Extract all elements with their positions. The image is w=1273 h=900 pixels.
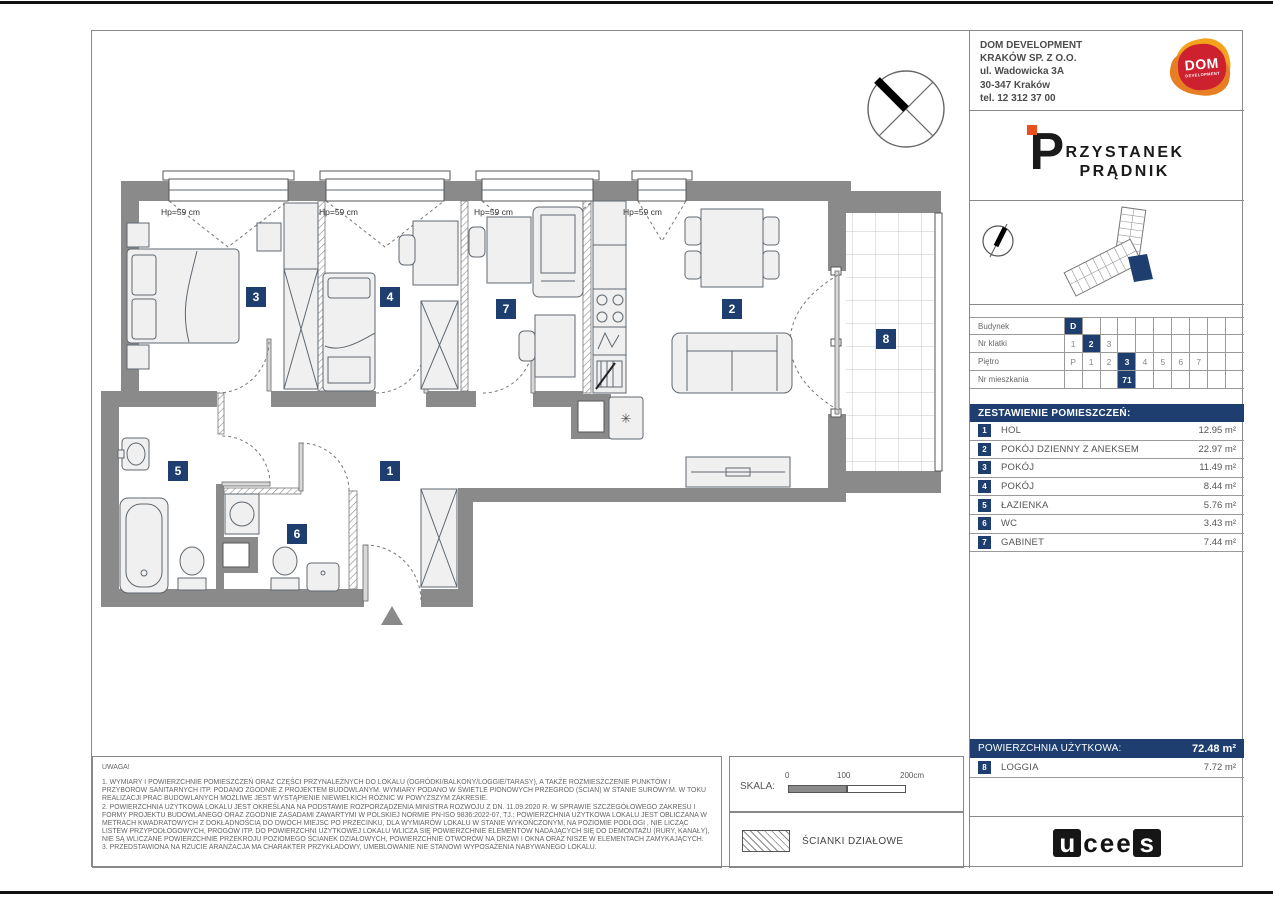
unit-info-cell: 1 — [1083, 353, 1101, 370]
unit-info-label: Nr klatki — [970, 335, 1065, 352]
scale-box: SKALA: 0 100 200cm — [729, 756, 964, 812]
unit-info-label: Budynek — [970, 318, 1065, 334]
room-number-badge: 3 — [978, 461, 991, 474]
usable-area-label: POWIERZCHNIA UŻYTKOWA: — [970, 743, 1121, 754]
armchair — [533, 207, 583, 297]
furniture-bathroom — [118, 438, 206, 593]
chair — [763, 217, 779, 245]
logo-line-1: RZYSTANEK — [1065, 144, 1184, 162]
room-area: 7.44 m² — [1204, 537, 1236, 548]
unit-info-cell: 3 — [1118, 353, 1136, 370]
unit-info-row: PiętroP1234567 — [970, 353, 1244, 371]
parapet-height-label: Hp=59 cm — [623, 207, 662, 217]
building-outline — [1064, 207, 1153, 296]
loggia-number-badge: 8 — [978, 761, 991, 774]
chair — [763, 251, 779, 279]
developer-info: DOM DEVELOPMENT KRAKÓW SP. Z O.O. ul. Wa… — [970, 31, 1244, 111]
notes-list: 1. WYMIARY I POWIERZCHNIE POMIESZCZEŃ OR… — [102, 779, 712, 852]
pillow — [328, 278, 370, 298]
unit-info-label: Piętro — [970, 353, 1065, 370]
room-number-badge: 2 — [978, 443, 991, 456]
scale-tick-0: 0 — [785, 771, 789, 780]
blanket — [328, 357, 370, 383]
north-compass-icon — [868, 71, 944, 147]
room-row: 1HOL12.95 m² — [970, 422, 1244, 441]
furniture-hall — [421, 489, 457, 587]
nightstand — [127, 345, 149, 369]
unit-info-cell — [1226, 335, 1244, 352]
notes-title: UWAGA! — [102, 764, 712, 772]
room-number-badge: 1 — [978, 424, 991, 437]
loggia-area: 7.72 m² — [1204, 762, 1236, 773]
furniture-room-3 — [127, 203, 318, 389]
pillow — [132, 255, 156, 295]
entrance-arrow — [381, 606, 403, 625]
unit-info-row: Nr mieszkania71 — [970, 371, 1244, 389]
door-entrance — [363, 545, 421, 601]
unit-info-table: BudynekDNr klatki123PiętroP1234567Nr mie… — [970, 317, 1244, 389]
room-name: GABINET — [1001, 537, 1044, 548]
room-row: 6WC3.43 m² — [970, 515, 1244, 534]
floor-plan-drawing: ✳ — [92, 31, 969, 756]
unit-info-cell — [1154, 371, 1172, 388]
brand-letter: s — [1133, 829, 1161, 857]
logo-line-2: PRĄDNIK — [1065, 163, 1184, 181]
room-badge-8: 8 — [876, 329, 896, 349]
duct-shafts — [216, 394, 611, 573]
wardrobe — [284, 269, 318, 389]
chair — [685, 217, 701, 245]
pillow — [132, 299, 156, 339]
page-top-rule — [0, 1, 1273, 4]
drawing-sheet: ✳ — [91, 30, 1243, 867]
room-name: HOL — [1001, 425, 1021, 436]
unit-info-cell — [1226, 371, 1244, 388]
unit-info-label: Nr mieszkania — [970, 371, 1065, 388]
unit-info-cell: 4 — [1136, 353, 1154, 370]
unit-info-cell — [1136, 318, 1154, 334]
unit-info-cell: 2 — [1101, 353, 1119, 370]
chair — [685, 251, 701, 279]
toilet — [178, 547, 206, 590]
chair — [469, 227, 485, 257]
usable-area-bar: POWIERZCHNIA UŻYTKOWA: 72.48 m² — [970, 739, 1244, 758]
site-map-drawing — [970, 201, 1245, 305]
nightstand — [127, 223, 149, 247]
fridge: ✳ — [609, 397, 643, 439]
unit-info-cell: 6 — [1172, 353, 1190, 370]
room-area: 22.97 m² — [1199, 444, 1237, 455]
brand-letter: c — [1083, 829, 1097, 857]
room-area: 3.43 m² — [1204, 518, 1236, 529]
dining-table — [701, 209, 763, 287]
info-sidebar: DOM DEVELOPMENT KRAKÓW SP. Z O.O. ul. Wa… — [969, 31, 1244, 868]
unit-info-cell — [1208, 353, 1226, 370]
unit-info-cell — [1154, 335, 1172, 352]
loggia-name: LOGGIA — [1001, 762, 1039, 773]
room-badge-6: 6 — [287, 524, 307, 544]
sink — [593, 327, 626, 355]
room-area: 5.76 m² — [1204, 500, 1236, 511]
floorplan-sheet: { "colors": {"navy":"#1d3e6e","wall_gray… — [0, 0, 1273, 900]
window-4 — [632, 171, 692, 241]
room-area: 11.49 m² — [1199, 462, 1236, 473]
scale-bar-filled — [788, 785, 847, 793]
unit-info-cell: 5 — [1154, 353, 1172, 370]
unit-info-cell: 71 — [1118, 371, 1136, 388]
unit-info-cell — [1154, 318, 1172, 334]
unit-info-cell: 7 — [1190, 353, 1208, 370]
unit-info-cell — [1172, 371, 1190, 388]
note-item: 3. PRZEDSTAWIONA NA RZUCIE ARANŻACJA MA … — [102, 844, 712, 852]
door-wc — [299, 443, 349, 491]
brand-letter: e — [1100, 829, 1114, 857]
room-badge-3: 3 — [246, 287, 266, 307]
unit-info-cell: P — [1065, 353, 1083, 370]
scale-bar-empty — [847, 785, 906, 793]
room-number-badge: 5 — [978, 499, 991, 512]
room-area: 8.44 m² — [1204, 481, 1236, 492]
room-badge-7: 7 — [496, 299, 516, 319]
counter — [593, 201, 626, 245]
project-logo-box: P RZYSTANEK PRĄDNIK — [970, 111, 1244, 201]
room-number-badge: 6 — [978, 517, 991, 530]
room-area: 12.95 m² — [1199, 425, 1237, 436]
room-name: ŁAZIENKA — [1001, 500, 1049, 511]
ucees-logo: ucees — [970, 816, 1244, 868]
unit-info-cell — [1208, 371, 1226, 388]
room-badge-1: 1 — [380, 461, 400, 481]
unit-info-cell — [1172, 318, 1190, 334]
rooms-table-header: ZESTAWIENIE POMIESZCZEŃ: — [970, 404, 1244, 422]
room-name: POKÓJ DZIENNY Z ANEKSEM — [1001, 444, 1139, 455]
room-row: 3POKÓJ11.49 m² — [970, 459, 1244, 478]
dom-development-logo: DOM DEVELOPMENT — [1166, 37, 1238, 101]
unit-info-cell — [1172, 335, 1190, 352]
dishwasher — [593, 355, 626, 393]
logo-orange-square — [1027, 125, 1037, 135]
scale-label: SKALA: — [740, 781, 775, 792]
furniture-living-room — [672, 209, 792, 487]
parapet-height-label: Hp=59 cm — [474, 207, 513, 217]
unit-info-cell — [1101, 318, 1119, 334]
washbasin — [118, 438, 149, 470]
room-badge-2: 2 — [722, 299, 742, 319]
stove — [593, 289, 626, 327]
unit-info-cell: 3 — [1101, 335, 1119, 352]
washing-machine — [225, 494, 259, 534]
room-number-badge: 4 — [978, 480, 991, 493]
counter — [593, 245, 626, 289]
unit-info-cell — [1190, 371, 1208, 388]
scale-tick-200: 200cm — [900, 771, 924, 780]
partition-legend-label: ŚCIANKI DZIAŁOWE — [802, 836, 903, 847]
mini-compass-icon — [983, 224, 1013, 257]
note-item: 2. POWIERZCHNIA UŻYTKOWA LOKALU JEST OKR… — [102, 804, 712, 845]
highlighted-unit — [1128, 254, 1153, 282]
chair — [519, 331, 535, 361]
site-location-map — [970, 201, 1244, 305]
room-name: POKÓJ — [1001, 481, 1034, 492]
unit-info-cell — [1136, 371, 1154, 388]
door-bathroom — [222, 436, 270, 486]
unit-info-cell — [1190, 335, 1208, 352]
unit-info-cell — [1118, 318, 1136, 334]
partition-legend: ŚCIANKI DZIAŁOWE — [729, 812, 964, 868]
wardrobe — [421, 489, 457, 587]
brand-letter: e — [1116, 829, 1130, 857]
note-item: 1. WYMIARY I POWIERZCHNIE POMIESZCZEŃ OR… — [102, 779, 712, 803]
parapet-height-label: Hp=59 cm — [161, 207, 200, 217]
floor-plan: ✳ — [92, 31, 969, 756]
furniture-room-7 — [469, 207, 583, 377]
loggia-row: 8 LOGGIA 7.72 m² — [970, 758, 1244, 778]
unit-info-cell — [1136, 335, 1154, 352]
rooms-table: 1HOL12.95 m²2POKÓJ DZIENNY Z ANEKSEM22.9… — [970, 422, 1244, 552]
unit-info-cell — [1065, 371, 1083, 388]
unit-info-cell — [1208, 318, 1226, 334]
desk — [487, 217, 531, 283]
unit-info-cell — [1118, 335, 1136, 352]
desk — [413, 221, 458, 285]
unit-info-cell — [1083, 318, 1101, 334]
brand-letter: u — [1053, 829, 1081, 857]
partition-hatch-swatch — [742, 830, 790, 852]
unit-info-row: Nr klatki123 — [970, 335, 1244, 353]
unit-info-cell — [1226, 353, 1244, 370]
unit-info-cell — [1083, 371, 1101, 388]
unit-info-row: BudynekD — [970, 317, 1244, 335]
toilet — [271, 547, 299, 590]
sofa — [672, 333, 792, 393]
room-row: 2POKÓJ DZIENNY Z ANEKSEM22.97 m² — [970, 441, 1244, 460]
table — [535, 315, 575, 377]
parapet-height-label: Hp=59 cm — [319, 207, 358, 217]
tv-console — [686, 457, 790, 487]
room-badge-4: 4 — [380, 287, 400, 307]
washbasin — [307, 563, 339, 591]
unit-info-cell — [1101, 371, 1119, 388]
door-room-3 — [217, 339, 271, 393]
door-room-4 — [376, 343, 428, 393]
scale-tick-100: 100 — [837, 771, 850, 780]
unit-info-cell — [1190, 318, 1208, 334]
usable-area-value: 72.48 m² — [1192, 743, 1236, 755]
chair — [399, 235, 415, 265]
svg-text:✳: ✳ — [621, 411, 632, 426]
unit-info-cell: D — [1065, 318, 1083, 334]
wardrobe — [421, 301, 458, 389]
room-row: 4POKÓJ8.44 m² — [970, 478, 1244, 497]
unit-info-cell — [1226, 318, 1244, 334]
room-name: POKÓJ — [1001, 462, 1034, 473]
dresser — [257, 223, 281, 251]
room-badge-5: 5 — [168, 461, 188, 481]
unit-info-cell — [1208, 335, 1226, 352]
door-loggia — [790, 267, 841, 417]
unit-info-cell: 1 — [1065, 335, 1083, 352]
room-name: WC — [1001, 518, 1017, 529]
room-row: 5ŁAZIENKA5.76 m² — [970, 496, 1244, 515]
legal-notes: UWAGA! 1. WYMIARY I POWIERZCHNIE POMIESZ… — [92, 756, 722, 868]
unit-info-cell: 2 — [1083, 335, 1101, 352]
cabinet — [284, 203, 318, 269]
przystanek-pradnik-logo: P RZYSTANEK PRĄDNIK — [1029, 128, 1184, 184]
bathtub — [120, 498, 168, 593]
room-row: 7GABINET7.44 m² — [970, 534, 1244, 553]
page-bottom-rule — [0, 891, 1273, 894]
room-number-badge: 7 — [978, 536, 991, 549]
